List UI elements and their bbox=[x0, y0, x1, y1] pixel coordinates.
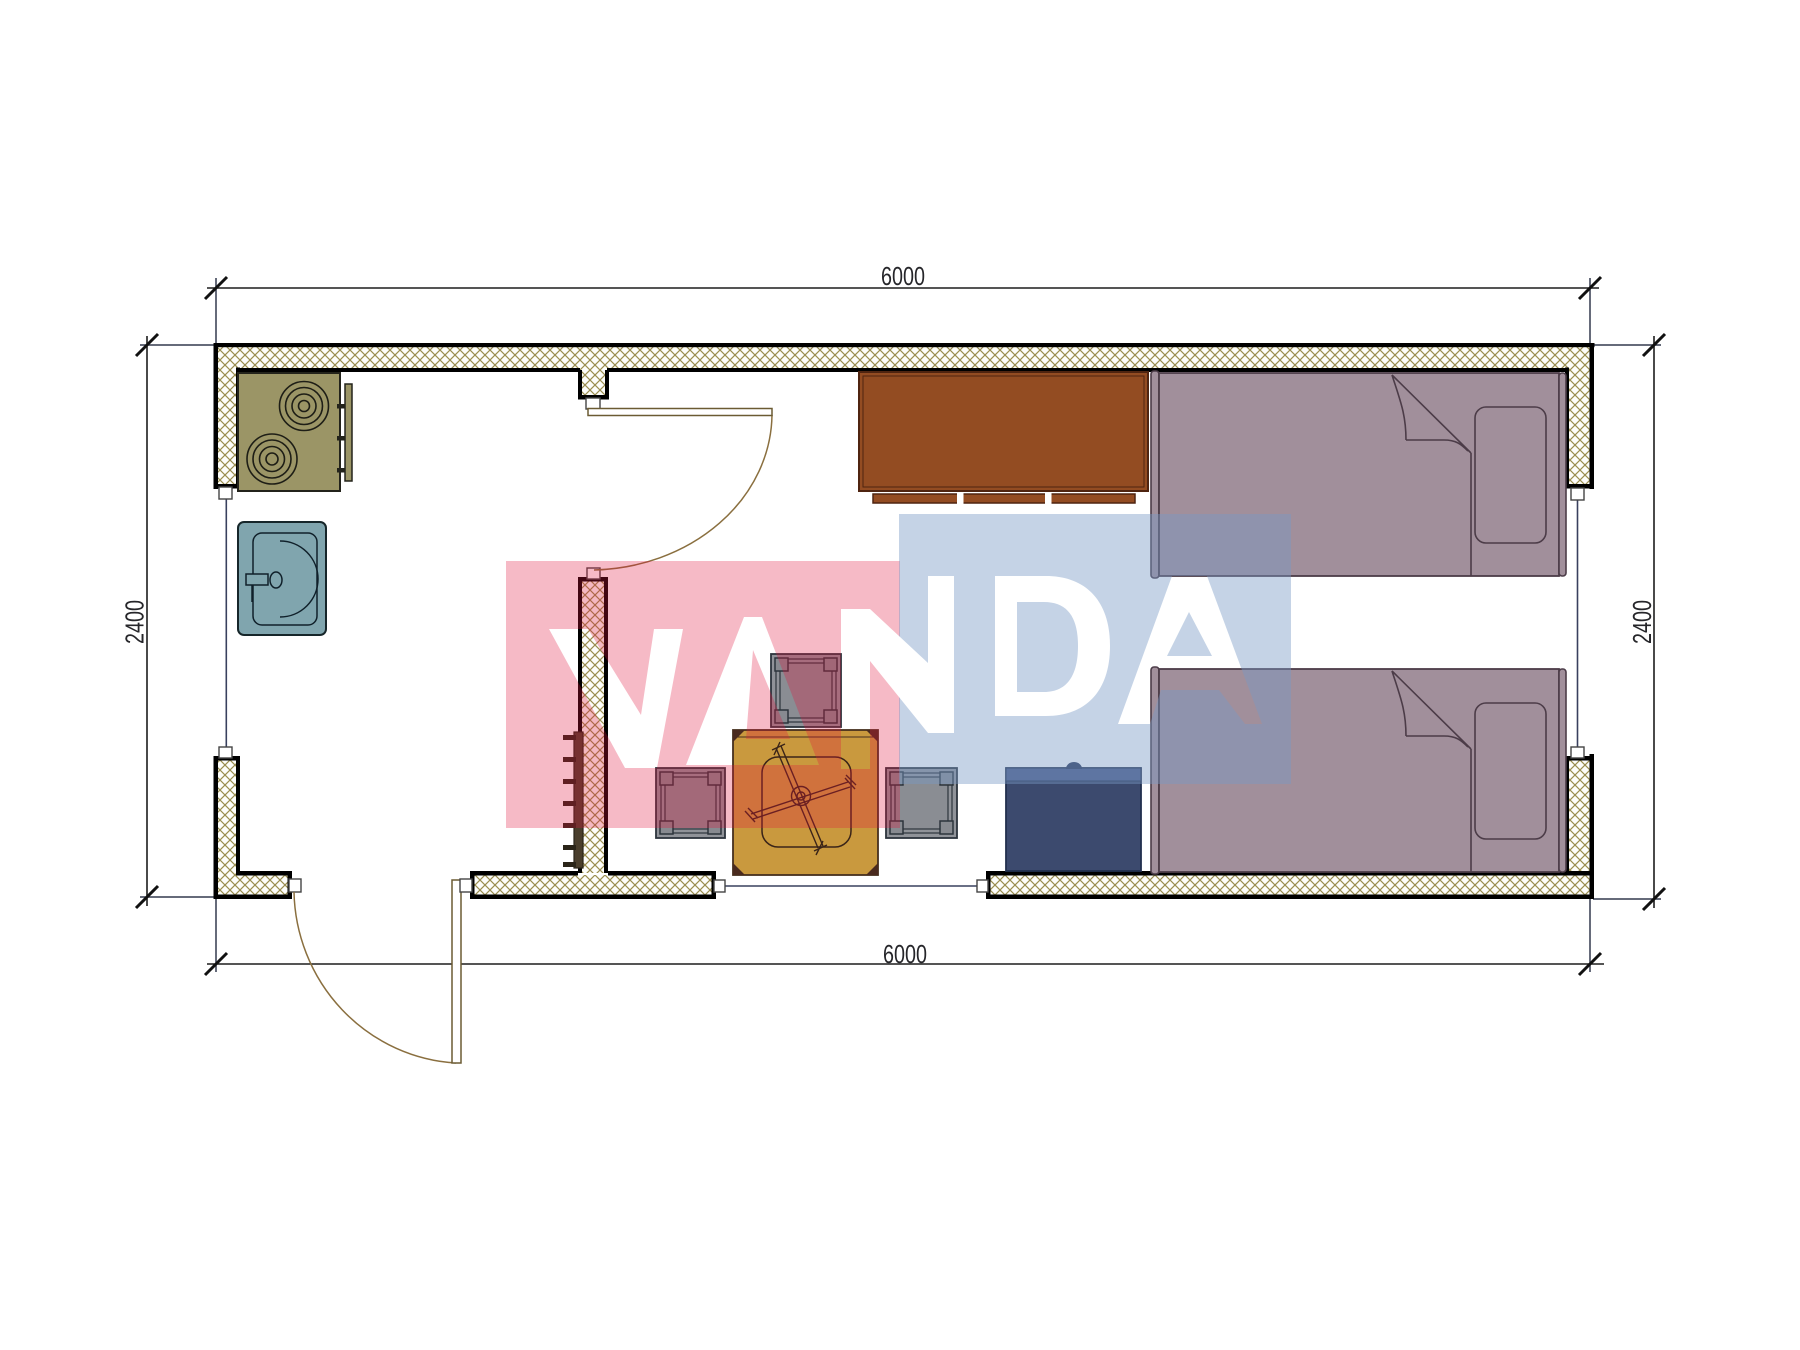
svg-text:6000: 6000 bbox=[881, 261, 925, 290]
svg-text:6000: 6000 bbox=[883, 939, 927, 968]
svg-text:2400: 2400 bbox=[1627, 600, 1656, 644]
svg-text:2400: 2400 bbox=[120, 600, 149, 644]
